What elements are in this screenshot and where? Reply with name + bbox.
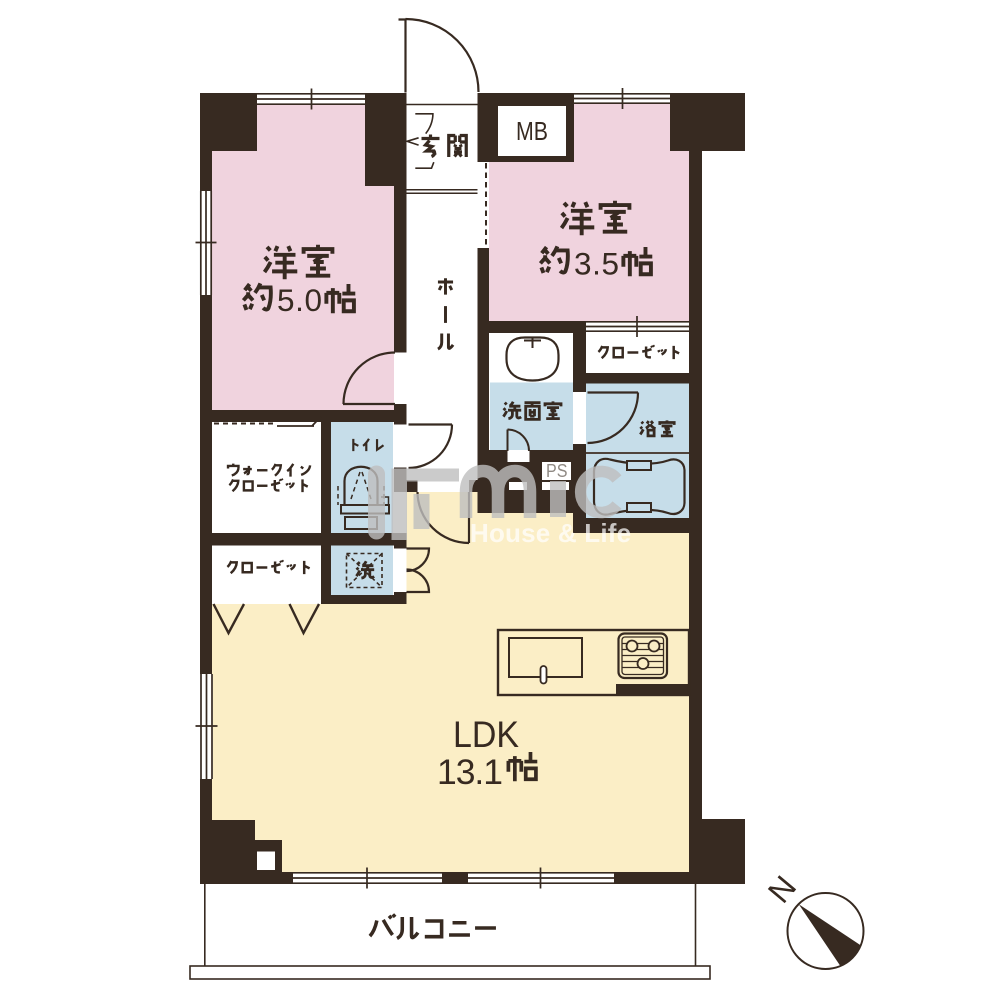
svg-text:3.5: 3.5 [574, 246, 619, 282]
svg-text:MB: MB [516, 116, 548, 146]
svg-text:13.1: 13.1 [437, 752, 503, 792]
svg-text:PS: PS [546, 461, 568, 481]
svg-text:5.0: 5.0 [277, 282, 322, 318]
svg-text:LDK: LDK [453, 713, 519, 755]
svg-text:House & Life: House & Life [470, 518, 631, 548]
